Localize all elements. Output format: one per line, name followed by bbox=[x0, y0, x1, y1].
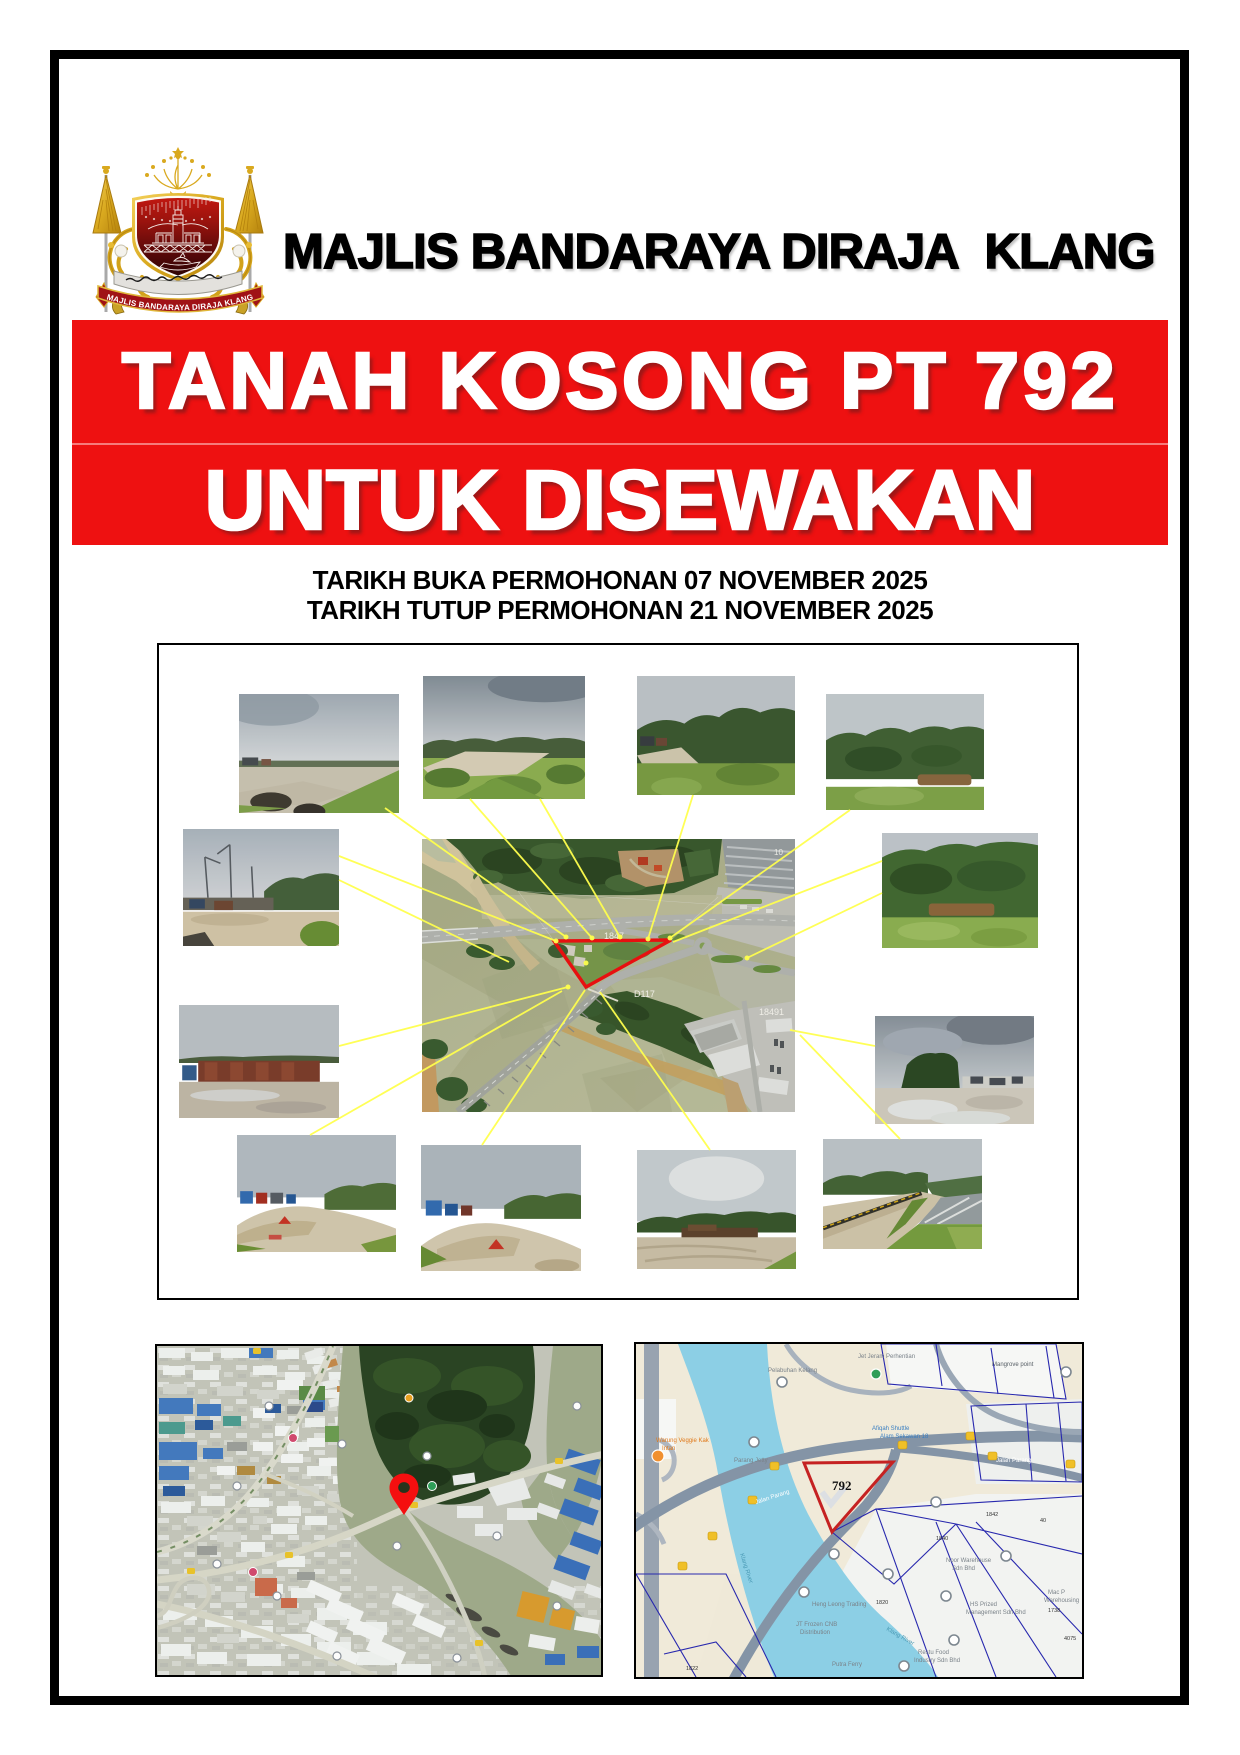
svg-text:Management Sdn Bhd: Management Sdn Bhd bbox=[966, 1610, 1026, 1616]
svg-text:1842: 1842 bbox=[986, 1512, 998, 1518]
svg-text:4075: 4075 bbox=[1064, 1636, 1076, 1642]
svg-text:792: 792 bbox=[832, 1478, 852, 1493]
svg-text:Warehousing: Warehousing bbox=[1044, 1598, 1079, 1604]
svg-text:JT Frozen CNB: JT Frozen CNB bbox=[796, 1622, 837, 1628]
svg-text:Jet Jeram Perhentian: Jet Jeram Perhentian bbox=[858, 1354, 915, 1360]
svg-text:Mac P: Mac P bbox=[1048, 1590, 1065, 1596]
svg-text:Industry Sdn Bhd: Industry Sdn Bhd bbox=[914, 1658, 960, 1664]
svg-text:1840: 1840 bbox=[936, 1536, 948, 1542]
svg-text:1738: 1738 bbox=[1048, 1608, 1060, 1614]
svg-text:Noor Warehouse: Noor Warehouse bbox=[946, 1558, 992, 1564]
svg-text:Intan: Intan bbox=[662, 1446, 675, 1452]
svg-text:HS Prized: HS Prized bbox=[970, 1602, 997, 1608]
svg-text:1822: 1822 bbox=[686, 1666, 698, 1672]
svg-text:40: 40 bbox=[1040, 1518, 1046, 1524]
svg-text:Putra Ferry: Putra Ferry bbox=[832, 1662, 862, 1668]
svg-text:Pelabuhan Kelang: Pelabuhan Kelang bbox=[768, 1368, 817, 1374]
svg-text:Heng Leong Trading: Heng Leong Trading bbox=[812, 1602, 866, 1608]
svg-text:Jalan Parang: Jalan Parang bbox=[996, 1458, 1031, 1464]
svg-text:Parang Jetty: Parang Jetty bbox=[734, 1458, 768, 1464]
svg-text:Distribution: Distribution bbox=[800, 1630, 830, 1636]
svg-text:Afiqah Shuttle: Afiqah Shuttle bbox=[872, 1426, 910, 1432]
svg-text:1820: 1820 bbox=[876, 1600, 888, 1606]
svg-text:Sdn Bhd: Sdn Bhd bbox=[952, 1566, 975, 1572]
svg-text:Warung Veggie Kak: Warung Veggie Kak bbox=[656, 1438, 710, 1444]
svg-text:Restu Food: Restu Food bbox=[918, 1650, 949, 1656]
svg-text:Mangrove point: Mangrove point bbox=[992, 1362, 1034, 1368]
svg-text:Alam Sekawan 18: Alam Sekawan 18 bbox=[880, 1434, 929, 1440]
